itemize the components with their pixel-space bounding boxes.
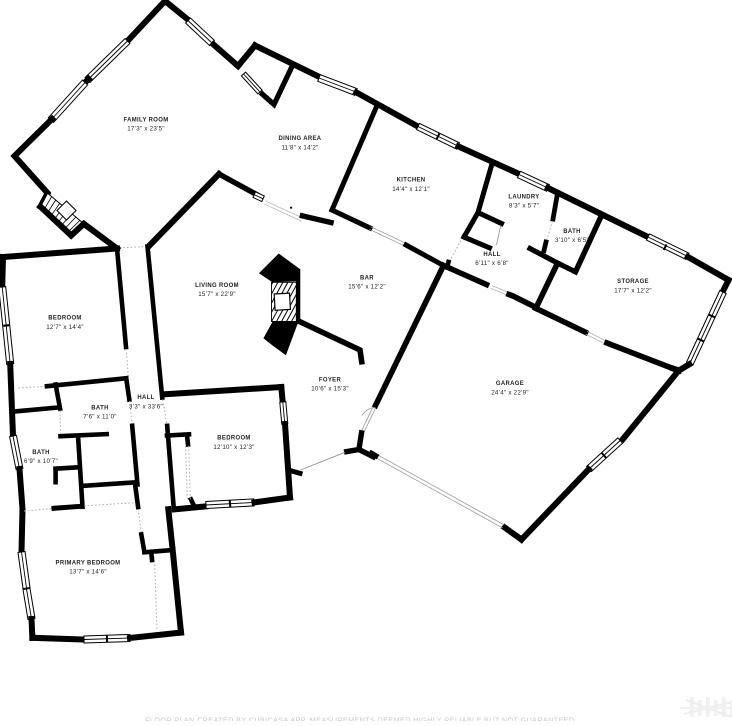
svg-text:BAR: BAR — [360, 276, 374, 282]
svg-text:7’6" x 11’0": 7’6" x 11’0" — [83, 414, 116, 421]
svg-text:FOYER: FOYER — [319, 377, 342, 383]
svg-text:3’3" x 33’6": 3’3" x 33’6" — [129, 403, 163, 410]
svg-text:17’7" x 12’2": 17’7" x 12’2" — [614, 287, 652, 294]
svg-text:HALL: HALL — [137, 395, 154, 401]
svg-text:10’6" x 15’3": 10’6" x 15’3" — [311, 386, 349, 393]
svg-text:6’9" x 10’7": 6’9" x 10’7" — [24, 458, 58, 465]
svg-text:13’7" x 14’6": 13’7" x 14’6" — [69, 569, 107, 576]
svg-text:8’3" x 5’7": 8’3" x 5’7" — [509, 203, 539, 210]
svg-text:STORAGE: STORAGE — [617, 279, 649, 285]
svg-text:FAMILY ROOM: FAMILY ROOM — [123, 117, 168, 123]
svg-text:GARAGE: GARAGE — [496, 381, 524, 387]
svg-text:BATH: BATH — [563, 229, 580, 235]
svg-text:17’3" x 23’5": 17’3" x 23’5" — [127, 126, 165, 133]
svg-text:15’6" x 12’2": 15’6" x 12’2" — [348, 284, 386, 291]
svg-text:LAUNDRY: LAUNDRY — [508, 194, 539, 200]
svg-text:HALL: HALL — [483, 252, 500, 258]
svg-text:12’10" x 12’3": 12’10" x 12’3" — [213, 444, 254, 451]
svg-text:24’4" x 22’9": 24’4" x 22’9" — [491, 389, 529, 396]
svg-text:DINING AREA: DINING AREA — [279, 136, 322, 142]
svg-text:12’7" x 14’4": 12’7" x 14’4" — [46, 324, 84, 331]
svg-text:11’8" x 14’2": 11’8" x 14’2" — [281, 144, 318, 151]
svg-text:6’11" x 6’8": 6’11" x 6’8" — [475, 260, 508, 267]
svg-text:14’4" x 12’1": 14’4" x 12’1" — [392, 186, 430, 193]
svg-text:BATH: BATH — [32, 450, 49, 456]
svg-text:KITCHEN: KITCHEN — [397, 178, 426, 184]
svg-text:15’7" x 22’9": 15’7" x 22’9" — [198, 291, 236, 298]
svg-text:3’10" x 6’5": 3’10" x 6’5" — [555, 237, 589, 244]
svg-text:BEDROOM: BEDROOM — [217, 436, 250, 442]
svg-text:BEDROOM: BEDROOM — [48, 316, 81, 322]
svg-text:FLOOR PLAN CREATED BY CUBICASA: FLOOR PLAN CREATED BY CUBICASA APP. MEAS… — [145, 716, 577, 722]
svg-text:LIVING ROOM: LIVING ROOM — [195, 283, 239, 289]
svg-text:BATH: BATH — [91, 405, 108, 411]
svg-text:PRIMARY BEDROOM: PRIMARY BEDROOM — [56, 561, 121, 567]
